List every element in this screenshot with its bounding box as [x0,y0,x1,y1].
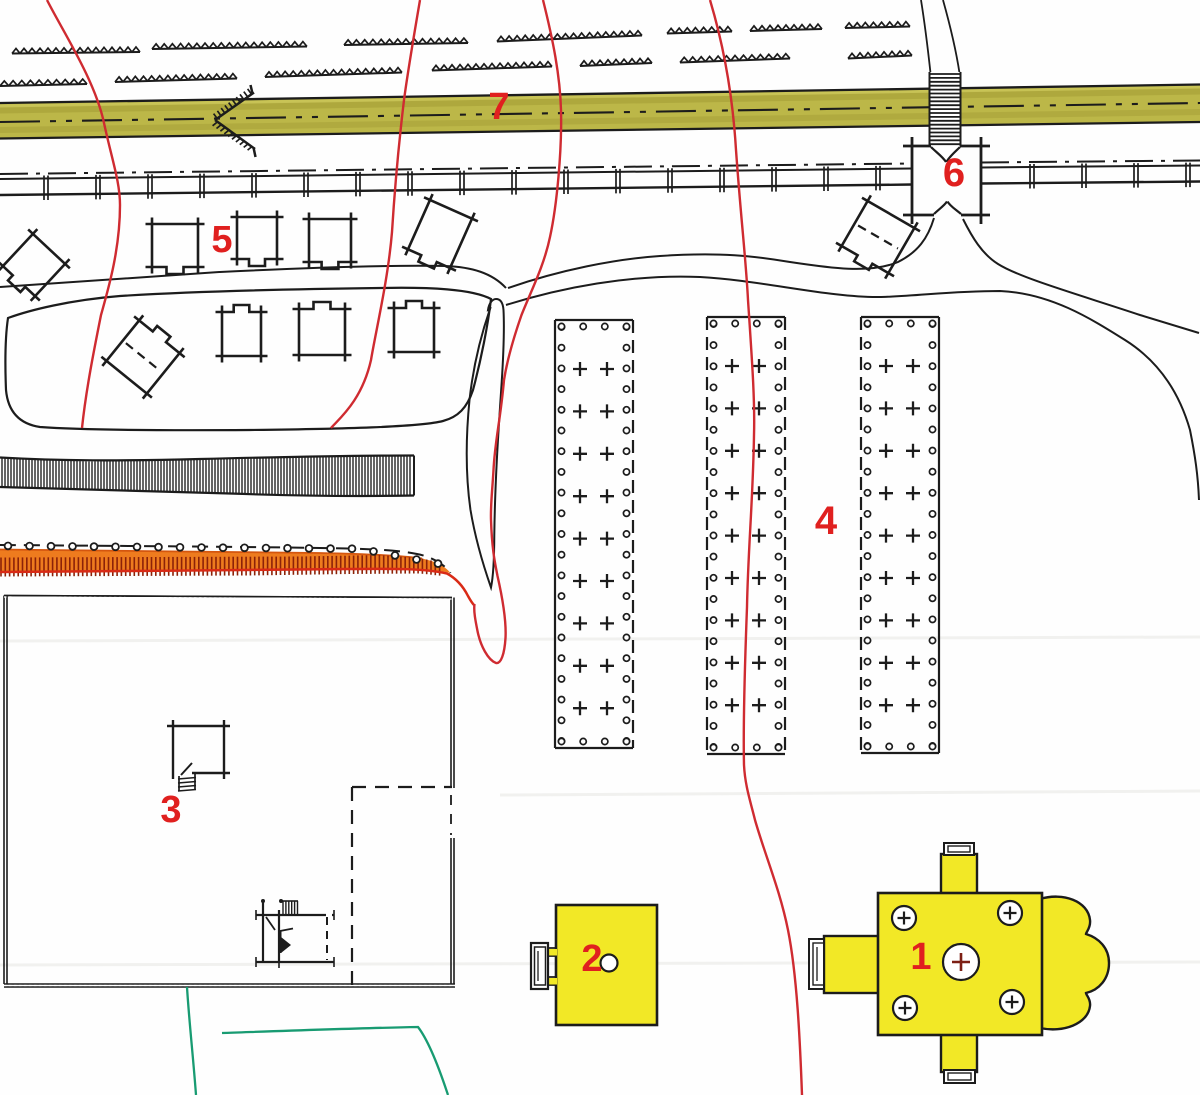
svg-text:1: 1 [910,936,931,978]
svg-text:6: 6 [943,151,965,195]
svg-text:4: 4 [815,499,838,543]
svg-text:5: 5 [211,219,232,261]
svg-text:3: 3 [160,789,181,831]
svg-text:2: 2 [581,938,602,980]
svg-text:7: 7 [488,86,509,128]
